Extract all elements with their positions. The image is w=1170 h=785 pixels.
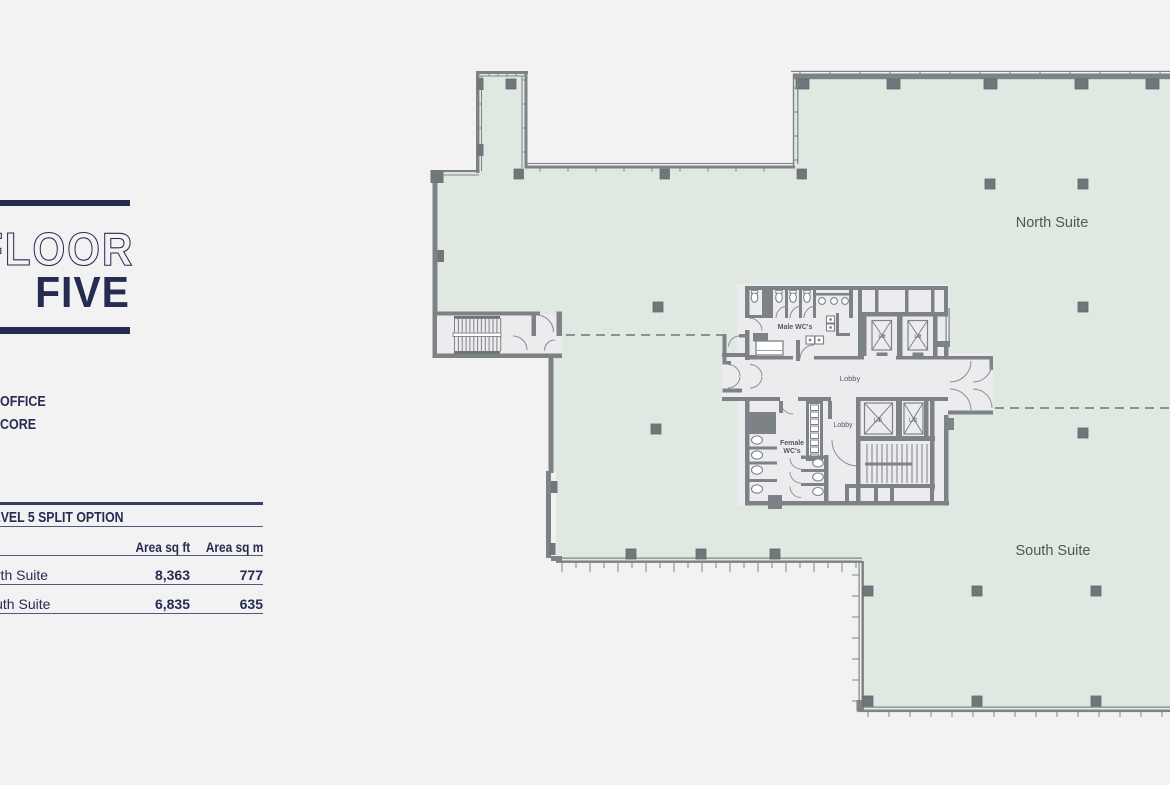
svg-text:Male WC's: Male WC's — [778, 324, 813, 331]
svg-text:Lift: Lift — [878, 334, 886, 340]
svg-text:Lobby: Lobby — [833, 422, 853, 429]
svg-text:Female: Female — [780, 440, 804, 447]
svg-text:Lift: Lift — [909, 418, 917, 424]
svg-text:South Suite: South Suite — [1016, 543, 1091, 559]
svg-text:North Suite: North Suite — [1016, 215, 1089, 231]
svg-text:Lift: Lift — [874, 418, 882, 424]
svg-text:Lobby: Lobby — [840, 374, 861, 383]
svg-text:WC's: WC's — [783, 448, 800, 455]
svg-text:Lift: Lift — [914, 334, 922, 340]
